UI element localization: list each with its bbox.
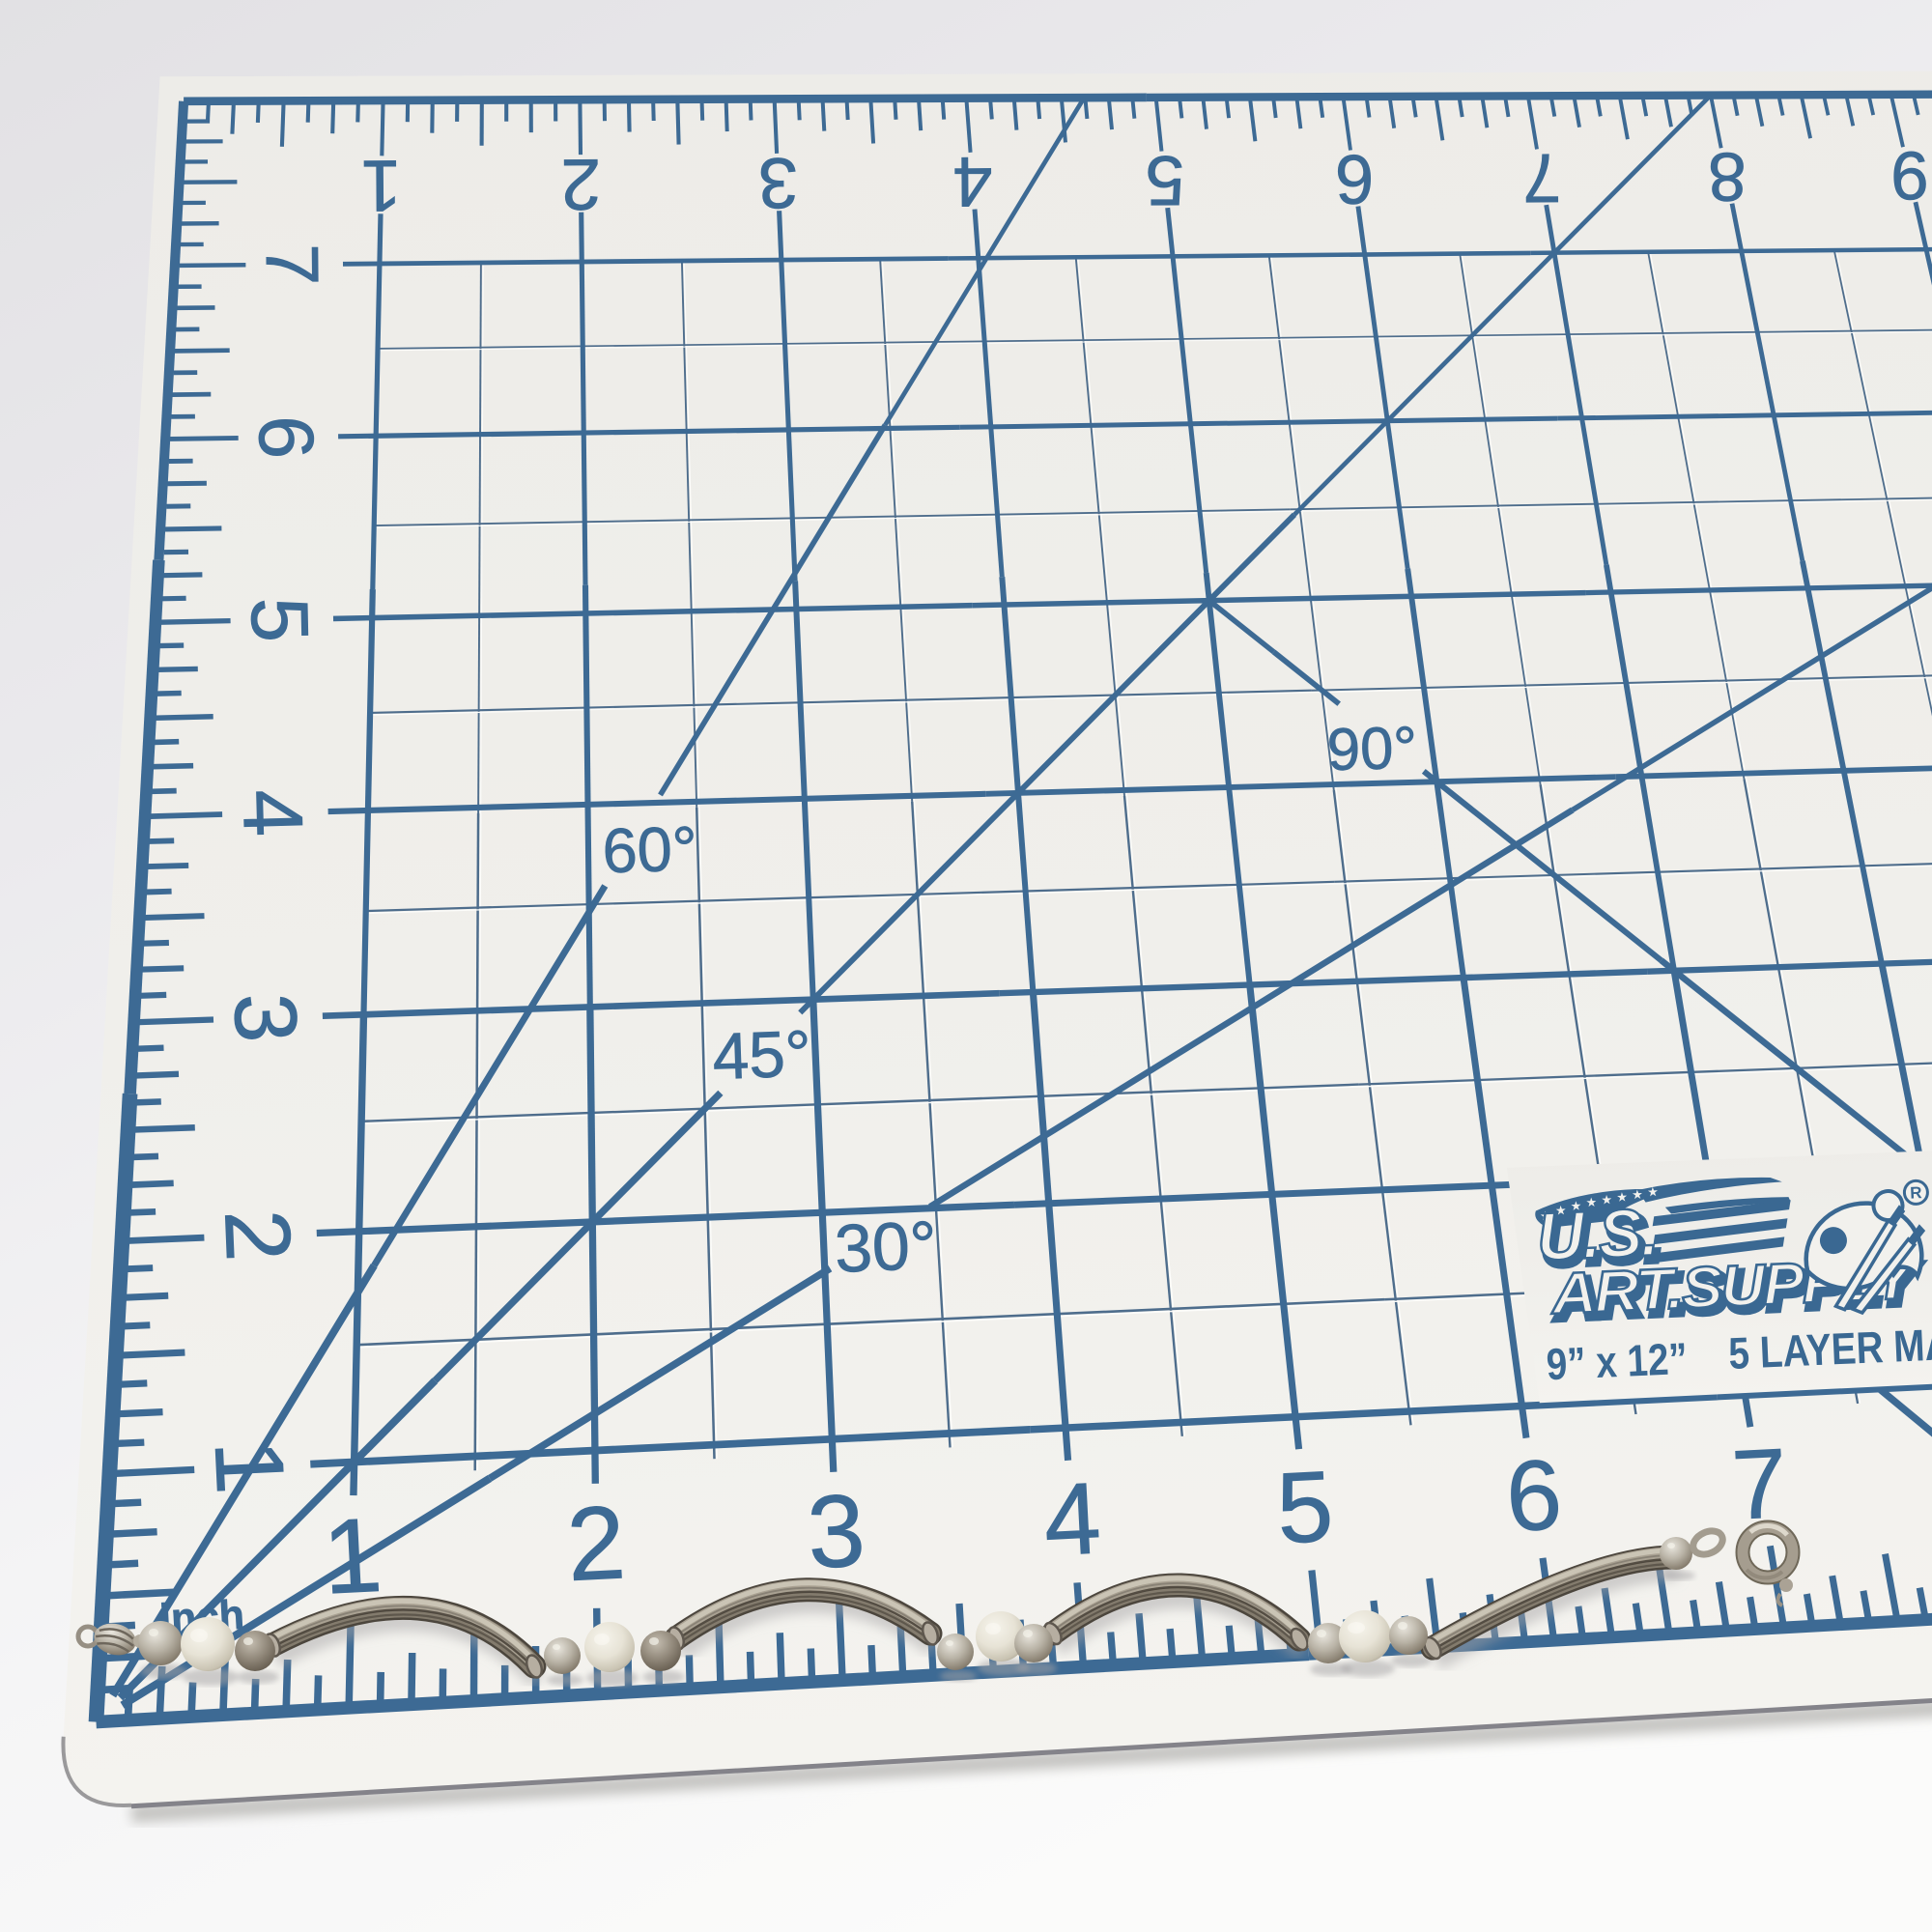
svg-text:2: 2: [205, 1207, 309, 1263]
svg-text:8: 8: [1708, 138, 1747, 214]
svg-text:4: 4: [225, 788, 321, 838]
svg-text:3: 3: [805, 1472, 867, 1590]
svg-text:7: 7: [250, 243, 333, 286]
svg-text:6: 6: [1503, 1438, 1564, 1552]
svg-text:60°: 60°: [602, 813, 698, 887]
svg-text:45°: 45°: [711, 1017, 812, 1094]
svg-text:7: 7: [1522, 139, 1561, 216]
svg-text:5: 5: [234, 596, 326, 642]
svg-text:9: 9: [1890, 137, 1929, 213]
svg-text:6: 6: [241, 415, 329, 460]
svg-text:9” x 12”: 9” x 12”: [1546, 1333, 1689, 1389]
svg-text:4: 4: [952, 142, 992, 221]
svg-text:5: 5: [1274, 1451, 1336, 1566]
svg-text:1: 1: [360, 145, 402, 226]
svg-text:5 LAYER MAT: 5 LAYER MAT: [1727, 1318, 1932, 1378]
svg-text:6: 6: [1335, 140, 1375, 217]
svg-text:3: 3: [758, 143, 799, 223]
svg-text:90°: 90°: [1326, 715, 1418, 783]
svg-text:30°: 30°: [833, 1207, 938, 1287]
svg-text:4: 4: [1041, 1462, 1103, 1577]
svg-text:R: R: [1910, 1183, 1922, 1203]
svg-text:2: 2: [564, 1484, 628, 1603]
svg-text:2: 2: [560, 144, 601, 225]
svg-text:3: 3: [215, 992, 316, 1044]
svg-text:5: 5: [1145, 141, 1184, 219]
